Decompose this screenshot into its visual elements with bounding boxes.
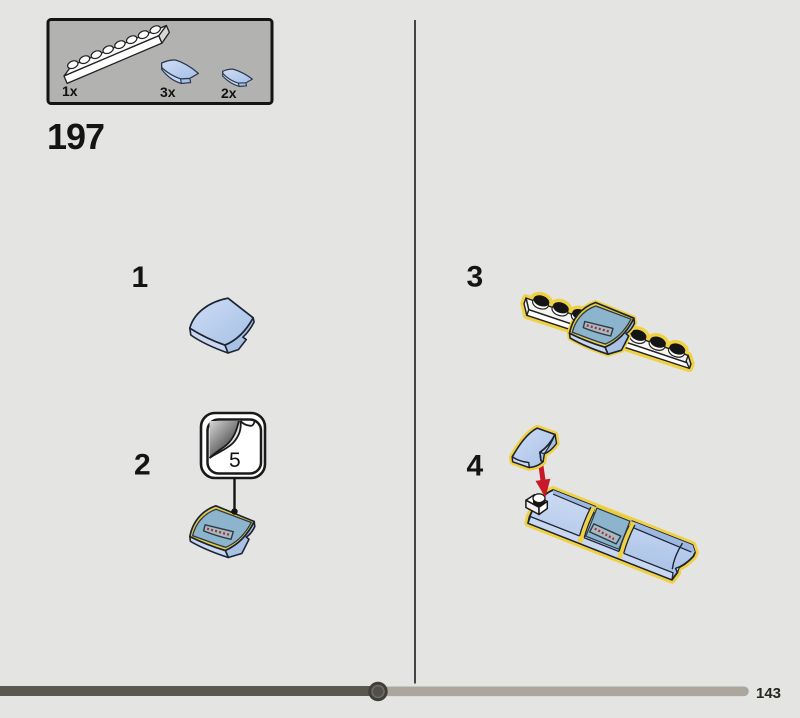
svg-text:197: 197 — [47, 116, 104, 157]
svg-text:3x: 3x — [160, 84, 176, 100]
svg-text:143: 143 — [756, 685, 781, 702]
svg-text:5: 5 — [229, 449, 241, 472]
svg-text:1x: 1x — [62, 83, 78, 99]
svg-text:1: 1 — [132, 261, 149, 294]
svg-text:3: 3 — [467, 261, 484, 294]
svg-text:2x: 2x — [221, 85, 237, 101]
svg-text:4: 4 — [467, 450, 484, 483]
svg-text:2: 2 — [134, 449, 151, 482]
